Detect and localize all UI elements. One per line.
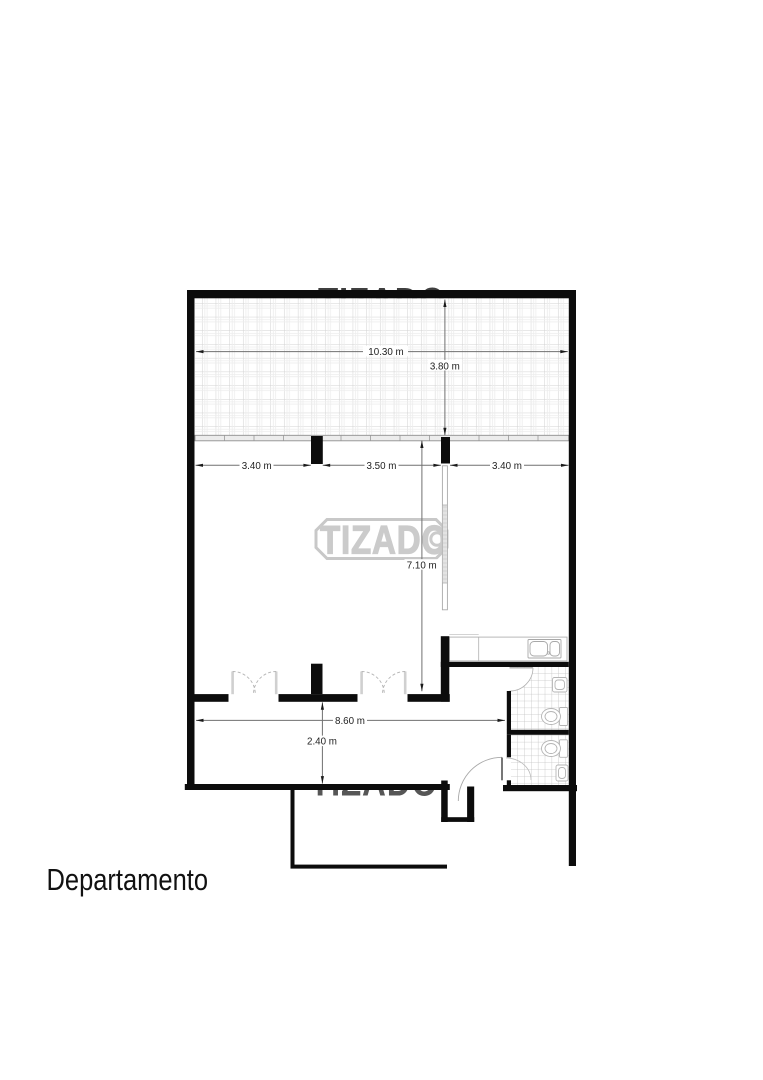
svg-text:3.40 m: 3.40 m: [242, 461, 272, 472]
svg-text:3.40 m: 3.40 m: [492, 461, 522, 472]
svg-text:2.40 m: 2.40 m: [307, 737, 337, 748]
svg-text:7.10 m: 7.10 m: [407, 561, 437, 572]
svg-text:Departamento: Departamento: [47, 863, 209, 897]
svg-text:10.30 m: 10.30 m: [368, 347, 403, 358]
svg-text:8.60 m: 8.60 m: [335, 716, 365, 727]
svg-text:3.80 m: 3.80 m: [430, 361, 460, 372]
svg-text:3.50 m: 3.50 m: [367, 461, 397, 472]
